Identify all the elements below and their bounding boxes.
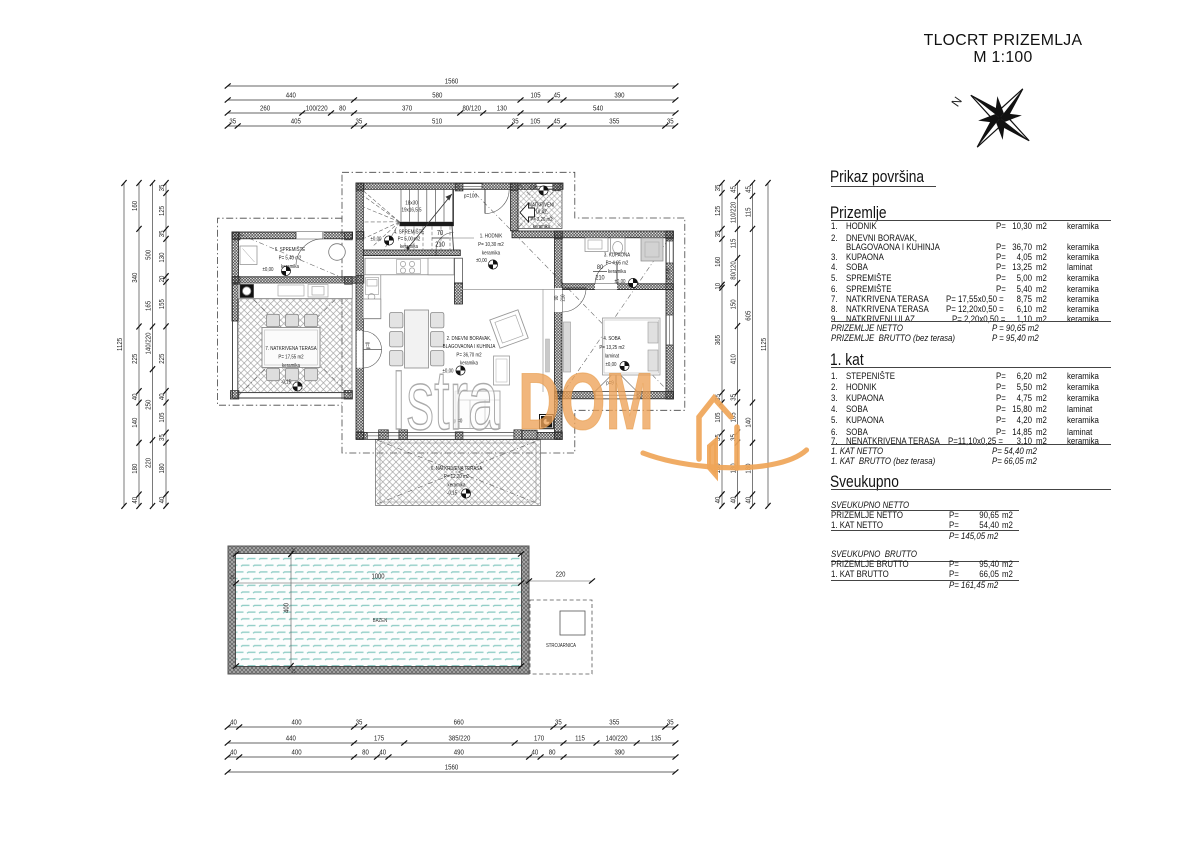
svg-text:355: 355 [609,118,619,126]
svg-text:540: 540 [593,105,603,113]
svg-text:440: 440 [286,735,296,743]
svg-text:35: 35 [714,230,722,237]
svg-text:130: 130 [158,252,166,262]
svg-text:P= 13,25 m2: P= 13,25 m2 [599,344,624,351]
svg-text:p=0: p=0 [365,342,372,350]
svg-text:180: 180 [158,463,166,473]
svg-text:6. SPREMIŠTE: 6. SPREMIŠTE [275,246,306,254]
svg-text:2. DNEVNI BORAVAK,: 2. DNEVNI BORAVAK, [447,336,492,343]
svg-text:80: 80 [597,264,604,272]
svg-text:keramika: keramika [400,244,418,251]
svg-text:140: 140 [745,417,753,427]
svg-text:N: N [949,94,965,109]
svg-text:510: 510 [432,118,442,126]
svg-text:80/120: 80/120 [730,261,738,280]
svg-text:-0,15: -0,15 [447,490,457,497]
svg-text:35: 35 [667,719,674,727]
svg-text:35: 35 [158,230,166,237]
svg-text:210: 210 [435,241,445,249]
svg-text:90: 90 [554,295,561,300]
svg-text:400: 400 [292,749,302,757]
svg-text:45: 45 [553,118,560,126]
svg-text:210: 210 [595,274,605,282]
svg-text:130: 130 [497,105,507,113]
svg-text:40: 40 [714,496,722,503]
svg-text:±0,00: ±0,00 [370,236,381,243]
svg-text:125: 125 [714,206,722,216]
svg-text:100/220: 100/220 [306,105,328,113]
svg-text:390: 390 [614,92,624,100]
svg-text:BAZEN: BAZEN [373,618,388,625]
svg-text:40: 40 [158,393,166,400]
svg-text:110/220: 110/220 [730,202,738,224]
svg-text:6. NATKRIVENA TERASA: 6. NATKRIVENA TERASA [431,466,483,473]
svg-text:7. NATKRIVENA TERASA: 7. NATKRIVENA TERASA [265,346,317,353]
svg-text:keramika: keramika [448,482,466,489]
svg-text:80: 80 [549,749,556,757]
svg-text:390: 390 [614,749,624,757]
svg-text:40: 40 [230,749,237,757]
svg-text:45: 45 [745,186,753,193]
svg-text:19x16,5.5: 19x16,5.5 [401,207,421,214]
svg-text:220: 220 [145,458,153,468]
svg-text:±0,00: ±0,00 [476,258,487,265]
svg-text:140: 140 [131,417,139,427]
svg-text:45: 45 [730,186,738,193]
svg-text:105: 105 [530,118,540,126]
svg-text:165: 165 [145,301,153,311]
svg-text:4. SPREMIŠTE: 4. SPREMIŠTE [394,228,425,236]
svg-text:35: 35 [158,434,166,441]
svg-text:NATKRIVENI: NATKRIVENI [529,202,554,209]
svg-text:ULAZ: ULAZ [536,209,547,216]
svg-text:500: 500 [145,250,153,260]
svg-text:P= 2,20 m2: P= 2,20 m2 [531,217,553,224]
svg-text:40: 40 [531,749,538,757]
svg-text:35: 35 [158,184,166,191]
svg-text:115: 115 [575,735,585,743]
svg-text:3. KUPAONA: 3. KUPAONA [604,252,631,259]
svg-text:365: 365 [714,335,722,345]
svg-text:440: 440 [286,92,296,100]
svg-text:170: 170 [534,735,544,743]
svg-text:405: 405 [291,118,301,126]
svg-text:225: 225 [158,353,166,363]
svg-text:605: 605 [745,310,753,320]
svg-text:BLAGOVAONA I KUHINJA: BLAGOVAONA I KUHINJA [443,344,496,351]
svg-text:25: 25 [291,668,296,673]
svg-text:40: 40 [131,393,139,400]
svg-text:1125: 1125 [116,338,124,351]
svg-text:400: 400 [283,603,291,613]
svg-text:135: 135 [651,735,661,743]
svg-text:80: 80 [339,105,346,113]
svg-text:keramika: keramika [482,250,500,257]
svg-text:225: 225 [131,354,139,364]
svg-text:45: 45 [554,92,561,100]
svg-text:keramika: keramika [282,362,300,369]
svg-text:250: 250 [145,399,153,409]
svg-text:490: 490 [454,749,464,757]
svg-text:DOM: DOM [518,356,654,447]
svg-text:P= 4,05 m2: P= 4,05 m2 [606,260,629,267]
svg-text:340: 340 [131,272,139,282]
svg-text:660: 660 [454,719,464,727]
svg-text:410: 410 [730,354,738,364]
svg-text:400: 400 [292,719,302,727]
svg-text:220: 220 [556,571,566,579]
svg-text:P= 5,40 m2: P= 5,40 m2 [279,255,302,262]
svg-text:P= 12,20 m2: P= 12,20 m2 [444,474,469,481]
svg-text:125: 125 [158,206,166,216]
svg-text:35: 35 [356,719,363,727]
svg-text:P= 17,55 m2: P= 17,55 m2 [278,354,303,361]
svg-text:1000: 1000 [371,573,384,581]
svg-text:140/220: 140/220 [145,332,153,354]
svg-text:35: 35 [512,118,519,126]
svg-text:-0,15: -0,15 [281,379,291,386]
svg-text:20: 20 [158,275,166,282]
svg-text:1. HODNIK: 1. HODNIK [480,233,503,240]
svg-text:P= 10,30 m2: P= 10,30 m2 [478,242,504,249]
svg-text:140/220: 140/220 [606,735,628,743]
svg-text:1125: 1125 [760,338,768,351]
svg-text:210: 210 [560,294,567,301]
svg-text:STROJARNICA: STROJARNICA [546,643,577,650]
svg-text:105: 105 [714,412,722,422]
svg-text:260: 260 [260,105,270,113]
svg-text:keramika: keramika [533,224,551,231]
svg-text:40: 40 [379,749,386,757]
svg-text:580: 580 [432,92,442,100]
svg-text:-0,05: -0,05 [528,185,538,190]
svg-text:±0,00: ±0,00 [262,267,273,274]
svg-text:40: 40 [730,496,738,503]
svg-text:Istra: Istra [391,355,499,448]
svg-text:40: 40 [230,719,237,727]
svg-text:35: 35 [229,118,236,126]
svg-text:80/120: 80/120 [462,105,481,113]
svg-text:40: 40 [158,496,166,503]
svg-text:4. SOBA: 4. SOBA [603,336,621,343]
svg-text:80: 80 [362,749,369,757]
svg-text:1560: 1560 [445,764,459,772]
svg-text:105: 105 [158,412,166,422]
svg-text:10: 10 [714,283,722,290]
svg-text:35: 35 [356,118,363,126]
svg-text:keramika: keramika [608,269,626,276]
svg-text:25: 25 [291,547,296,552]
svg-text:p=100: p=100 [665,268,672,280]
svg-text:35: 35 [714,184,722,191]
svg-text:160: 160 [131,201,139,211]
svg-text:40: 40 [745,497,753,504]
svg-text:35: 35 [555,719,562,727]
svg-text:175: 175 [374,735,384,743]
svg-text:355: 355 [609,719,619,727]
svg-text:25: 25 [230,574,235,579]
svg-text:155: 155 [158,299,166,309]
svg-text:70: 70 [437,230,444,238]
svg-text:p=100: p=100 [464,193,477,200]
svg-text:385/220: 385/220 [449,735,471,743]
svg-text:105: 105 [530,92,540,100]
svg-text:180: 180 [131,463,139,473]
svg-text:18x30: 18x30 [405,200,418,207]
svg-text:35: 35 [730,394,738,401]
svg-text:P= 5,00 m2: P= 5,00 m2 [398,236,421,243]
svg-text:370: 370 [402,105,412,113]
svg-text:1560: 1560 [445,78,459,86]
svg-text:35: 35 [667,118,674,126]
svg-text:160: 160 [714,257,722,267]
svg-text:115: 115 [730,238,738,248]
svg-text:150: 150 [730,299,738,309]
svg-text:±0,00: ±0,00 [614,279,625,286]
svg-text:40: 40 [131,497,139,504]
svg-text:115: 115 [745,207,753,217]
